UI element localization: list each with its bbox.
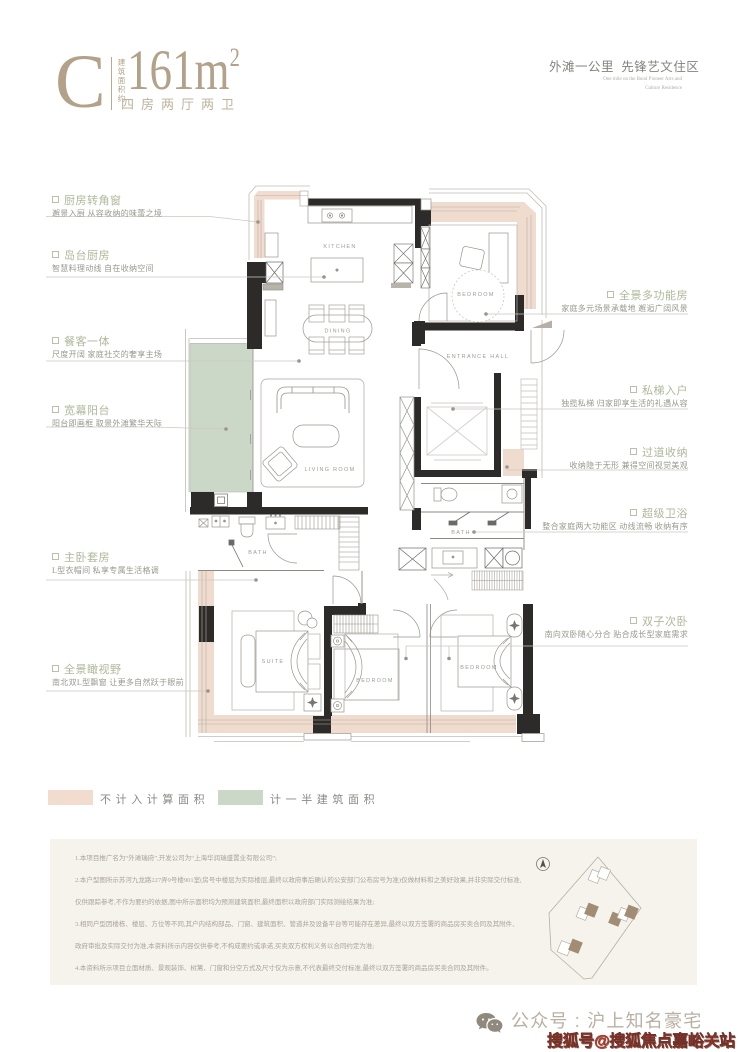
svg-text:BATH: BATH: [451, 530, 470, 536]
svg-text:LIVING ROOM: LIVING ROOM: [305, 467, 356, 473]
svg-text:BEDROOM: BEDROOM: [460, 665, 498, 671]
svg-text:BEDROOM: BEDROOM: [356, 678, 394, 684]
svg-text:BATH: BATH: [248, 550, 267, 556]
svg-text:ENTRANCE HALL: ENTRANCE HALL: [447, 354, 509, 360]
svg-text:KITCHEN: KITCHEN: [323, 244, 356, 250]
svg-text:SUITE: SUITE: [262, 659, 285, 665]
svg-text:DINING: DINING: [324, 329, 351, 335]
